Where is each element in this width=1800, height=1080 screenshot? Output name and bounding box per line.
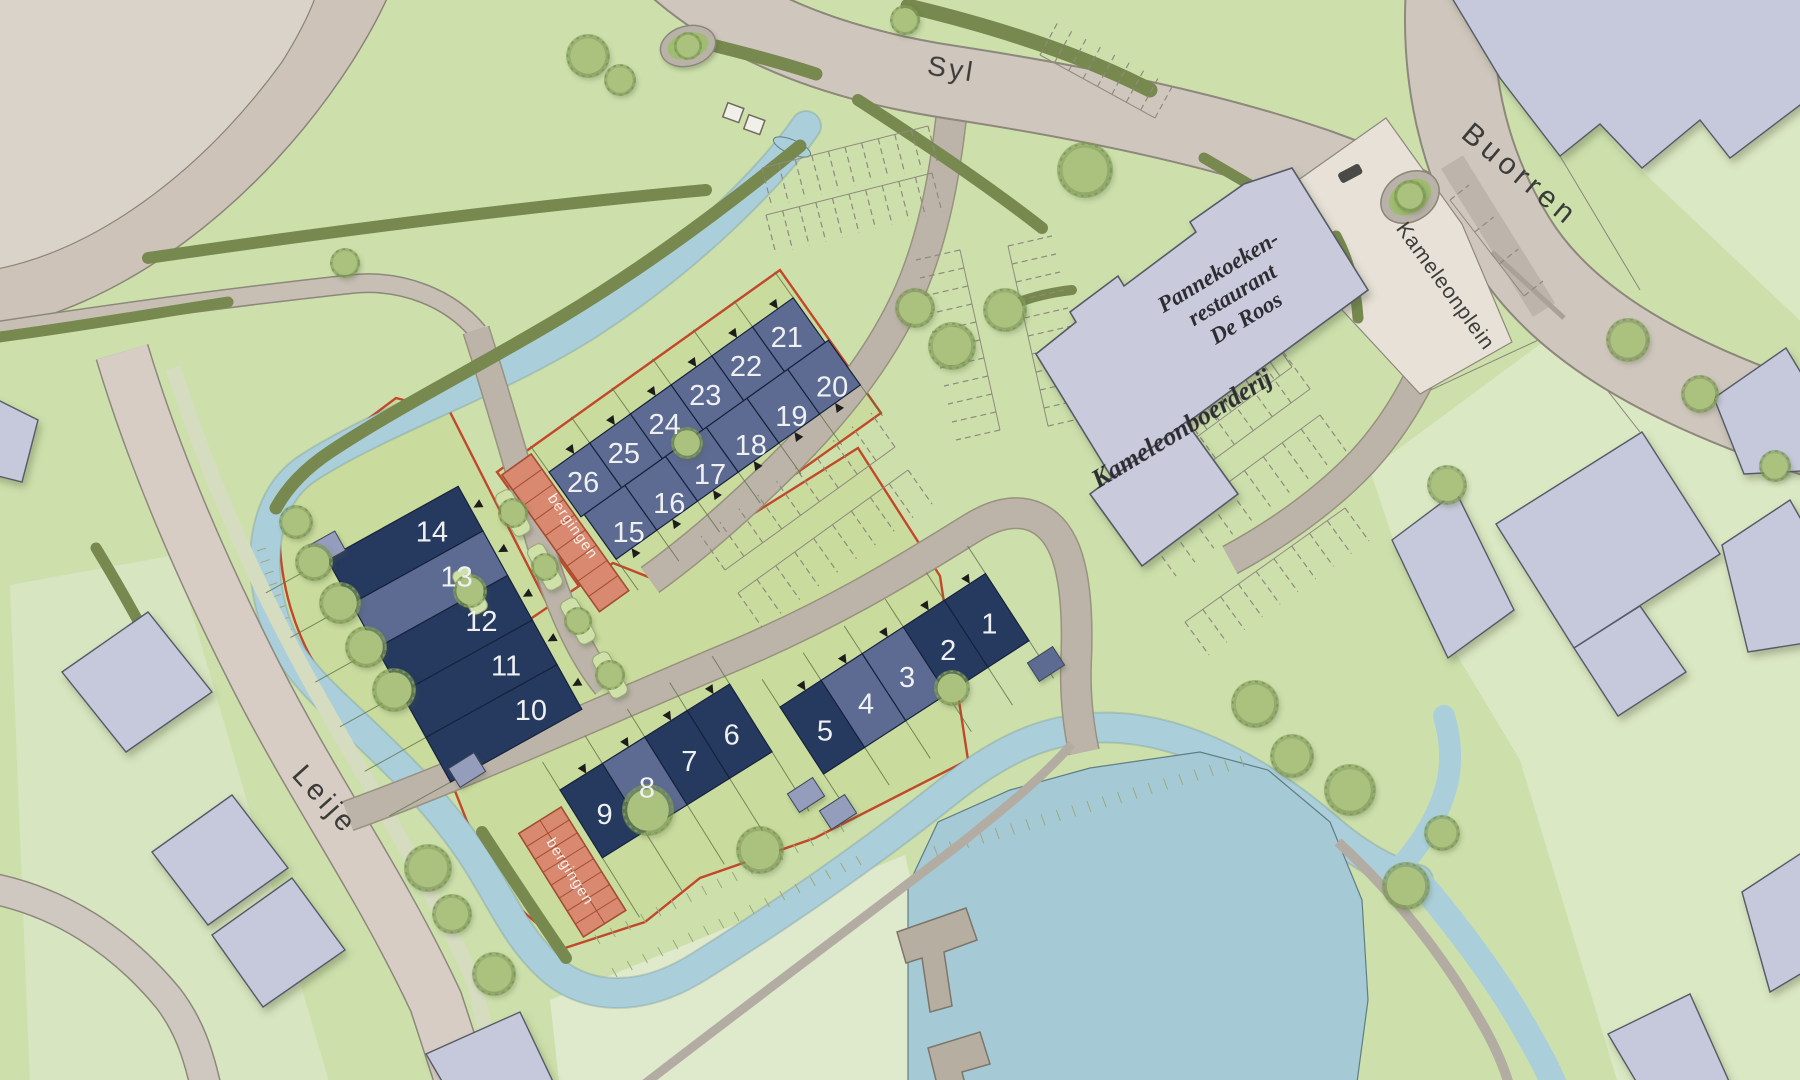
lot-number-3: 3 xyxy=(899,662,915,694)
lot-number-11: 11 xyxy=(491,651,521,683)
lot-number-24: 24 xyxy=(648,409,680,441)
tree-icon xyxy=(498,498,528,528)
tree-icon xyxy=(1606,318,1650,362)
tree-icon xyxy=(472,952,516,996)
tree-icon xyxy=(564,607,592,635)
tree-icon xyxy=(595,660,625,690)
tree-icon xyxy=(404,844,452,892)
tree-icon xyxy=(604,64,636,96)
tree-icon xyxy=(983,288,1027,332)
lot-number-20: 20 xyxy=(816,372,848,404)
tree-icon xyxy=(319,582,361,624)
tree-icon xyxy=(432,894,472,934)
lot-number-15: 15 xyxy=(612,517,644,549)
tree-icon xyxy=(1057,142,1113,198)
lot-number-14: 14 xyxy=(416,517,448,549)
lot-number-26: 26 xyxy=(567,467,599,499)
tree-icon xyxy=(566,34,610,78)
tree-icon xyxy=(1382,862,1430,910)
tree-icon xyxy=(895,288,935,328)
tree-icon xyxy=(345,626,387,668)
tree-icon xyxy=(674,32,702,60)
tree-icon xyxy=(934,670,970,706)
lot-number-13: 13 xyxy=(441,561,473,593)
lot-number-16: 16 xyxy=(653,488,685,520)
tree-icon xyxy=(1427,465,1467,505)
lot-number-21: 21 xyxy=(771,322,803,354)
lot-number-1: 1 xyxy=(981,609,997,641)
tree-icon xyxy=(1681,375,1719,413)
lot-number-18: 18 xyxy=(735,430,767,462)
lot-number-19: 19 xyxy=(775,401,807,433)
lot-number-8: 8 xyxy=(639,773,655,805)
lot-number-23: 23 xyxy=(689,380,721,412)
tree-icon xyxy=(890,5,920,35)
lot-number-6: 6 xyxy=(724,720,740,752)
lot-number-5: 5 xyxy=(817,715,833,747)
lot-number-10: 10 xyxy=(515,695,547,727)
tree-icon xyxy=(928,322,976,370)
tree-icon xyxy=(295,543,333,581)
lot-number-7: 7 xyxy=(681,746,697,778)
tree-icon xyxy=(531,553,559,581)
lot-number-9: 9 xyxy=(596,799,612,831)
tree-icon xyxy=(372,668,416,712)
tree-icon xyxy=(1270,734,1314,778)
tree-icon xyxy=(1324,764,1376,816)
lot-number-17: 17 xyxy=(694,459,726,491)
lot-number-22: 22 xyxy=(730,351,762,383)
lot-number-12: 12 xyxy=(465,606,497,638)
tree-icon xyxy=(1759,450,1791,482)
lot-number-25: 25 xyxy=(608,438,640,470)
tree-icon xyxy=(1424,815,1460,851)
lot-number-2: 2 xyxy=(940,635,956,667)
tree-icon xyxy=(330,248,360,278)
site-plan: 1413121110262524232221151617181920987654… xyxy=(0,0,1800,1080)
tree-icon xyxy=(1394,180,1426,212)
tree-icon xyxy=(279,505,313,539)
tree-icon xyxy=(736,826,784,874)
lot-number-4: 4 xyxy=(858,689,874,721)
tree-icon xyxy=(1231,680,1279,728)
